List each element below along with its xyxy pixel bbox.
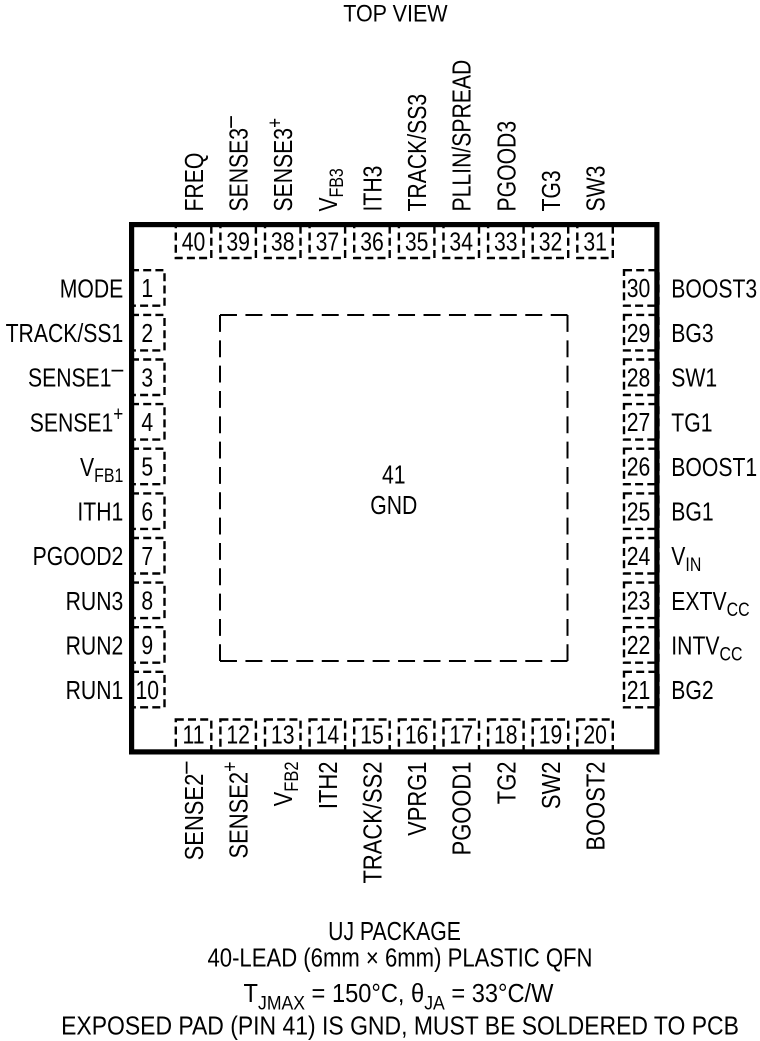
svg-text:VIN: VIN <box>671 543 701 575</box>
svg-text:PGOOD3: PGOOD3 <box>493 121 522 212</box>
svg-text:20: 20 <box>583 722 607 751</box>
svg-text:16: 16 <box>405 722 429 751</box>
svg-text:TRACK/SS1: TRACK/SS1 <box>6 320 124 349</box>
svg-text:41: 41 <box>382 461 406 490</box>
svg-text:MODE: MODE <box>60 276 124 305</box>
svg-text:ITH2: ITH2 <box>314 762 343 810</box>
svg-text:12: 12 <box>226 722 250 751</box>
svg-text:25: 25 <box>627 498 651 527</box>
svg-text:27: 27 <box>627 409 651 438</box>
svg-text:36: 36 <box>360 229 384 258</box>
svg-text:4: 4 <box>141 409 153 438</box>
svg-text:GND: GND <box>370 492 417 521</box>
svg-text:29: 29 <box>627 320 651 349</box>
svg-text:EXPOSED PAD (PIN 41) IS GND, M: EXPOSED PAD (PIN 41) IS GND, MUST BE SOL… <box>61 1012 739 1040</box>
svg-text:11: 11 <box>183 722 205 751</box>
svg-text:37: 37 <box>316 229 340 258</box>
svg-text:BOOST2: BOOST2 <box>582 762 611 851</box>
svg-text:ITH1: ITH1 <box>77 499 123 528</box>
svg-text:1: 1 <box>141 275 153 304</box>
svg-text:19: 19 <box>539 722 563 751</box>
svg-text:PGOOD1: PGOOD1 <box>448 762 477 856</box>
svg-text:SENSE1+: SENSE1+ <box>30 403 124 438</box>
svg-text:INTVCC: INTVCC <box>671 633 742 665</box>
svg-text:8: 8 <box>141 588 153 617</box>
svg-text:TG1: TG1 <box>671 409 712 438</box>
svg-text:40-LEAD (6mm × 6mm) PLASTIC QF: 40-LEAD (6mm × 6mm) PLASTIC QFN <box>207 944 592 973</box>
svg-text:SENSE3–: SENSE3– <box>216 115 255 211</box>
svg-text:5: 5 <box>141 454 153 483</box>
svg-text:TOP VIEW: TOP VIEW <box>343 0 448 27</box>
svg-text:VFB3: VFB3 <box>315 168 347 211</box>
svg-text:VFB2: VFB2 <box>270 762 303 807</box>
svg-text:23: 23 <box>627 588 651 617</box>
svg-text:RUN3: RUN3 <box>66 588 124 617</box>
svg-text:40: 40 <box>182 229 206 258</box>
svg-text:32: 32 <box>539 229 563 258</box>
svg-text:10: 10 <box>136 677 160 706</box>
svg-text:SENSE3+: SENSE3+ <box>264 118 299 212</box>
svg-text:SENSE2–: SENSE2– <box>170 761 209 860</box>
svg-text:TRACK/SS2: TRACK/SS2 <box>359 762 388 884</box>
svg-text:31: 31 <box>583 229 607 258</box>
svg-text:BG1: BG1 <box>671 499 713 528</box>
svg-text:BOOST1: BOOST1 <box>671 454 757 483</box>
svg-text:VPRG1: VPRG1 <box>403 762 432 836</box>
svg-text:13: 13 <box>271 722 295 751</box>
svg-text:SENSE2+: SENSE2+ <box>219 762 254 859</box>
svg-text:FREQ: FREQ <box>181 153 210 212</box>
svg-text:26: 26 <box>627 454 651 483</box>
svg-text:SW2: SW2 <box>537 762 566 810</box>
svg-text:2: 2 <box>141 320 153 349</box>
svg-text:RUN2: RUN2 <box>66 633 124 662</box>
svg-text:3: 3 <box>141 364 153 393</box>
svg-text:21: 21 <box>627 677 651 706</box>
svg-text:38: 38 <box>271 229 295 258</box>
svg-text:BG3: BG3 <box>671 320 713 349</box>
svg-text:PLLIN/SPREAD: PLLIN/SPREAD <box>449 60 478 212</box>
svg-text:33: 33 <box>494 229 518 258</box>
svg-text:6: 6 <box>141 498 153 527</box>
svg-text:BOOST3: BOOST3 <box>671 276 757 305</box>
svg-text:39: 39 <box>226 229 250 258</box>
svg-text:PGOOD2: PGOOD2 <box>33 543 124 572</box>
svg-text:22: 22 <box>627 632 651 661</box>
svg-text:TJMAX = 150°C, θJA = 33°C/W: TJMAX = 150°C, θJA = 33°C/W <box>244 980 555 1013</box>
svg-text:18: 18 <box>494 722 518 751</box>
svg-text:TRACK/SS3: TRACK/SS3 <box>404 94 433 212</box>
svg-text:TG2: TG2 <box>493 762 522 805</box>
svg-text:15: 15 <box>360 722 384 751</box>
svg-text:SW1: SW1 <box>671 365 717 394</box>
svg-text:14: 14 <box>316 722 340 751</box>
svg-text:UJ PACKAGE: UJ PACKAGE <box>328 917 461 945</box>
svg-text:RUN1: RUN1 <box>66 677 124 706</box>
svg-text:BG2: BG2 <box>671 677 713 706</box>
svg-text:ITH3: ITH3 <box>360 166 389 212</box>
svg-text:EXTVCC: EXTVCC <box>671 588 749 620</box>
svg-text:TG3: TG3 <box>538 170 567 211</box>
svg-text:34: 34 <box>449 229 473 258</box>
svg-text:35: 35 <box>405 229 429 258</box>
svg-text:SW3: SW3 <box>583 166 612 212</box>
svg-text:28: 28 <box>627 364 651 393</box>
svg-text:SENSE1–: SENSE1– <box>28 355 124 394</box>
svg-text:24: 24 <box>627 543 651 572</box>
svg-text:7: 7 <box>141 543 153 572</box>
svg-text:9: 9 <box>141 632 153 661</box>
svg-text:VFB1: VFB1 <box>80 454 123 486</box>
svg-text:30: 30 <box>627 275 651 304</box>
svg-text:17: 17 <box>449 722 473 751</box>
